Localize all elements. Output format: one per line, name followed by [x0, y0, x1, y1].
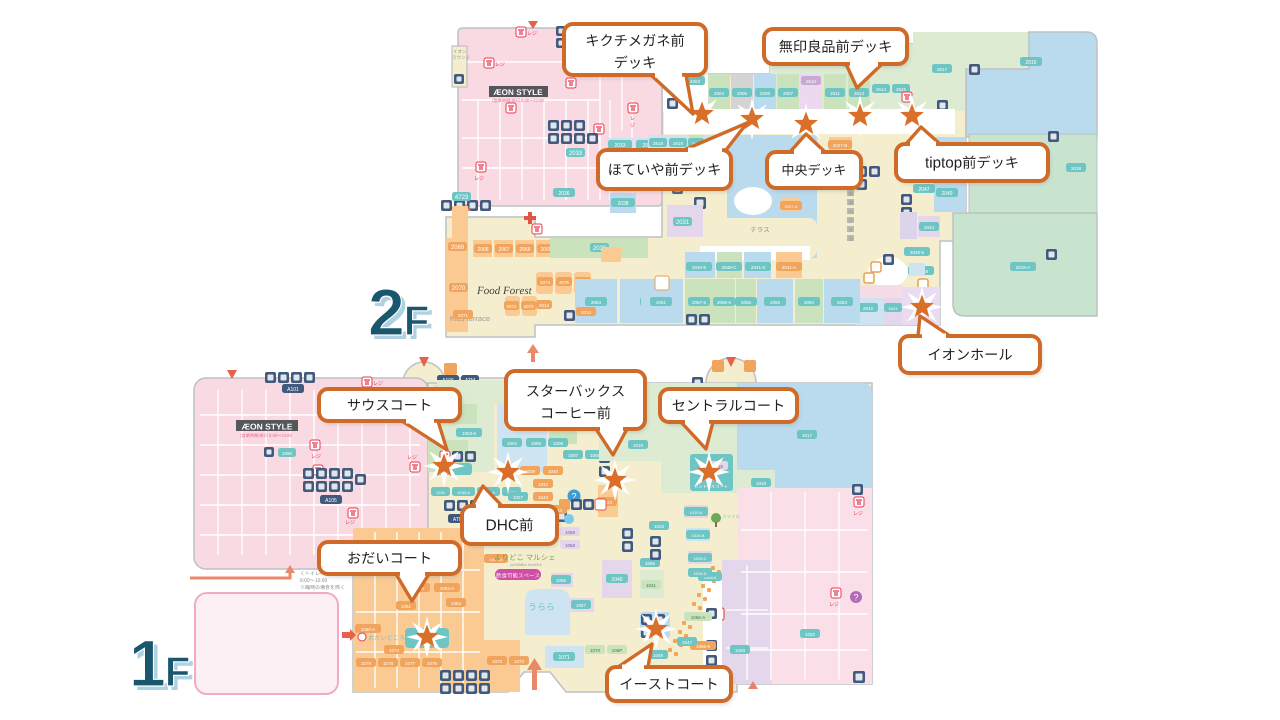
svg-text:106P: 106P [612, 648, 623, 653]
svg-text:2007: 2007 [783, 91, 794, 96]
svg-text:2041: 2041 [889, 306, 899, 311]
svg-text:2005: 2005 [737, 91, 748, 96]
svg-text:2041-6: 2041-6 [751, 265, 766, 270]
svg-text:1019-B: 1019-B [692, 533, 705, 538]
svg-text:1066-A: 1066-A [691, 615, 706, 620]
svg-text:1077: 1077 [405, 661, 416, 666]
svg-text:1073: 1073 [514, 659, 525, 664]
svg-text:2027-A: 2027-A [785, 204, 798, 209]
svg-text:2019-A: 2019-A [1016, 265, 1031, 270]
svg-text:1057: 1057 [576, 603, 587, 608]
svg-text:1004: 1004 [507, 441, 518, 446]
svg-text:?: ? [853, 593, 858, 603]
svg-text:1056: 1056 [556, 578, 567, 583]
svg-text:2056-6: 2056-6 [717, 300, 732, 305]
svg-text:1076: 1076 [427, 661, 438, 666]
svg-text:1007: 1007 [568, 453, 579, 458]
svg-text:2061: 2061 [656, 300, 667, 305]
svg-text:2070: 2070 [452, 286, 466, 292]
svg-text:1063-A: 1063-A [440, 586, 455, 591]
svg-text:2054: 2054 [804, 300, 815, 305]
svg-text:1066: 1066 [645, 561, 656, 566]
svg-text:1039: 1039 [525, 469, 536, 474]
svg-text:2074: 2074 [540, 280, 551, 285]
svg-text:1071: 1071 [558, 655, 569, 661]
svg-text:1090: 1090 [282, 451, 293, 456]
svg-text:1079: 1079 [361, 661, 372, 666]
svg-text:1064: 1064 [451, 601, 462, 606]
svg-text:1058: 1058 [565, 543, 576, 548]
svg-text:2043: 2043 [924, 225, 935, 230]
svg-text:1006: 1006 [553, 441, 564, 446]
svg-text:2040-6: 2040-6 [692, 265, 707, 270]
svg-text:1070: 1070 [590, 648, 601, 653]
svg-text:2055: 2055 [770, 300, 781, 305]
svg-text:4723: 4723 [455, 195, 469, 201]
svg-text:2041-A: 2041-A [782, 265, 797, 270]
svg-text:1027: 1027 [513, 495, 524, 500]
svg-text:2003: 2003 [690, 79, 701, 84]
svg-text:2006: 2006 [760, 91, 771, 96]
svg-text:1031: 1031 [436, 490, 446, 495]
svg-text:2066: 2066 [519, 247, 530, 253]
svg-text:1030-6: 1030-6 [457, 490, 470, 495]
svg-text:2056: 2056 [741, 300, 752, 305]
svg-text:1040: 1040 [611, 577, 622, 583]
svg-text:1022: 1022 [805, 632, 816, 637]
svg-text:1051: 1051 [401, 604, 412, 609]
svg-text:1059: 1059 [565, 530, 576, 535]
svg-text:2027-B: 2027-B [833, 143, 848, 148]
svg-text:2033: 2033 [569, 151, 583, 157]
svg-text:2619: 2619 [673, 141, 684, 146]
svg-text:2611: 2611 [830, 91, 840, 96]
svg-text:1017: 1017 [802, 433, 813, 438]
svg-text:1023: 1023 [654, 524, 665, 529]
svg-text:1008: 1008 [590, 453, 601, 458]
svg-text:2042: 2042 [863, 306, 874, 311]
svg-text:2613: 2613 [854, 91, 865, 96]
svg-text:1003-6: 1003-6 [462, 431, 477, 436]
svg-text:1049: 1049 [653, 653, 664, 658]
svg-text:2047: 2047 [918, 187, 929, 193]
svg-text:1020: 1020 [735, 648, 746, 653]
svg-text:1005: 1005 [531, 441, 542, 446]
svg-text:2614: 2614 [876, 87, 887, 92]
svg-text:1047-A: 1047-A [490, 557, 503, 562]
svg-text:1074: 1074 [389, 648, 400, 653]
svg-text:1019-D: 1019-D [693, 571, 706, 576]
svg-text:2053: 2053 [837, 300, 848, 305]
svg-text:2049: 2049 [941, 191, 952, 197]
svg-text:2615: 2615 [896, 87, 907, 92]
svg-text:A105: A105 [325, 498, 337, 504]
svg-text:A101: A101 [287, 387, 299, 393]
svg-text:1041: 1041 [646, 583, 657, 588]
svg-text:2068: 2068 [477, 247, 488, 253]
svg-text:1072: 1072 [492, 659, 503, 664]
svg-text:1019-C: 1019-C [693, 556, 706, 561]
svg-text:2018: 2018 [1071, 166, 1082, 171]
svg-text:1042: 1042 [538, 482, 549, 487]
svg-text:2036: 2036 [558, 191, 569, 197]
svg-text:1060-A: 1060-A [361, 627, 376, 632]
svg-text:1040: 1040 [548, 469, 559, 474]
svg-text:2040-C: 2040-C [722, 265, 738, 270]
svg-text:2017: 2017 [937, 67, 948, 72]
svg-text:2073: 2073 [523, 304, 534, 309]
svg-text:1019-A: 1019-A [690, 510, 703, 515]
svg-text:2071: 2071 [458, 313, 469, 318]
svg-text:1010: 1010 [633, 443, 644, 448]
svg-text:2014: 2014 [539, 303, 550, 308]
svg-text:2069: 2069 [451, 245, 465, 251]
svg-text:2033: 2033 [614, 143, 625, 149]
svg-text:1018: 1018 [756, 481, 767, 486]
svg-text:2067: 2067 [498, 247, 509, 253]
svg-text:2014: 2014 [581, 310, 592, 315]
svg-text:1078: 1078 [383, 661, 394, 666]
svg-text:2038: 2038 [617, 201, 628, 207]
svg-text:1066-6: 1066-6 [696, 644, 711, 649]
svg-text:2004: 2004 [714, 91, 725, 96]
svg-text:2063: 2063 [591, 300, 602, 305]
svg-text:1043: 1043 [538, 495, 549, 500]
svg-text:2618: 2618 [653, 141, 664, 146]
svg-text:2016: 2016 [1025, 60, 1036, 66]
svg-text:2031: 2031 [676, 220, 690, 226]
svg-text:2048-6: 2048-6 [910, 250, 925, 255]
svg-text:2075: 2075 [559, 280, 570, 285]
svg-text:2610: 2610 [806, 79, 817, 84]
svg-text:2057-6: 2057-6 [692, 300, 707, 305]
svg-text:1047: 1047 [682, 640, 693, 645]
svg-text:2072: 2072 [506, 304, 517, 309]
